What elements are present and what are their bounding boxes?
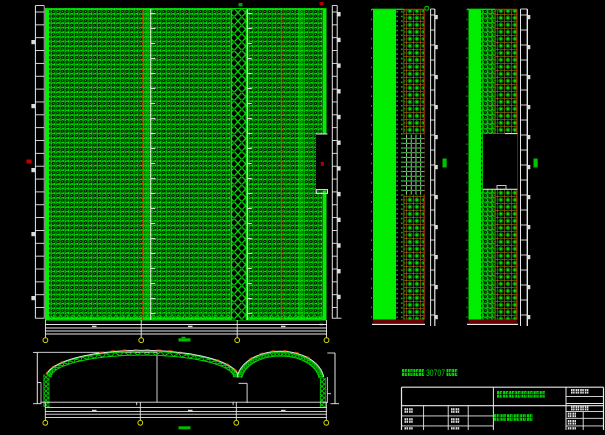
svg-text:30707: 30707 [426,368,445,378]
